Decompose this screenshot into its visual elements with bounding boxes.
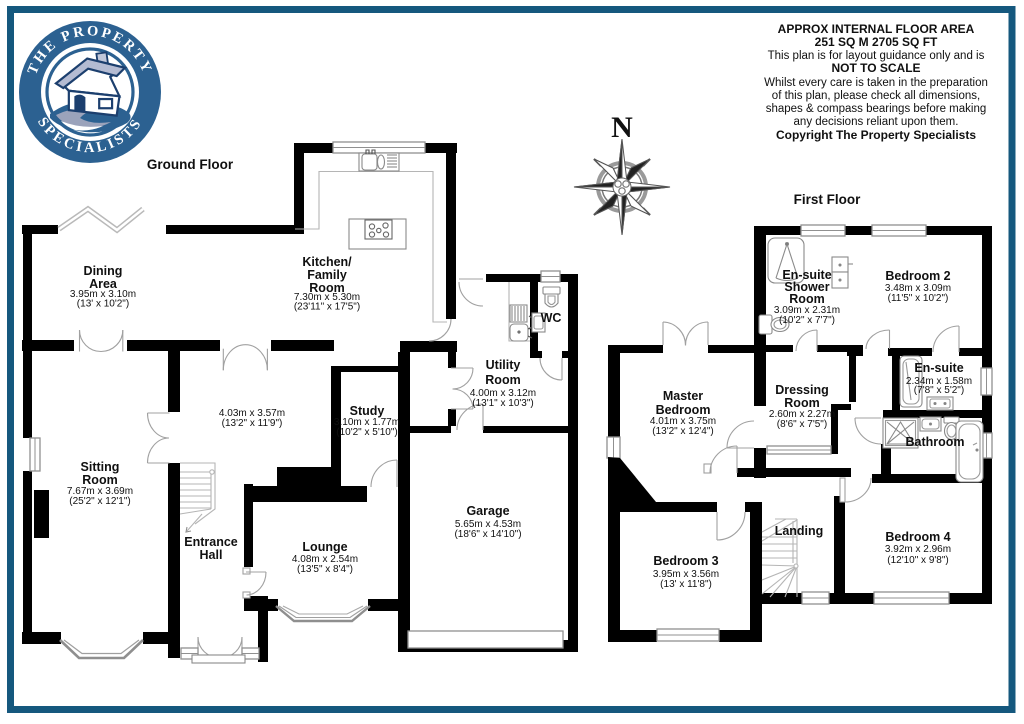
svg-text:Whilst every care is taken in: Whilst every care is taken in the prepar…	[764, 77, 988, 89]
svg-text:(10'2" x 5'10"): (10'2" x 5'10")	[336, 427, 398, 438]
svg-text:(7'8" x 5'2"): (7'8" x 5'2")	[914, 385, 964, 396]
svg-text:(25'2" x 12'1"): (25'2" x 12'1")	[69, 496, 131, 507]
svg-text:Room: Room	[789, 292, 824, 306]
svg-text:Master: Master	[663, 389, 703, 403]
svg-text:Dressing: Dressing	[775, 383, 829, 397]
svg-text:(18'6" x 14'10"): (18'6" x 14'10")	[454, 529, 521, 540]
svg-text:Room: Room	[784, 396, 819, 410]
svg-text:Sitting: Sitting	[81, 460, 120, 474]
svg-text:Bedroom 2: Bedroom 2	[885, 269, 950, 283]
svg-text:WC: WC	[541, 311, 562, 325]
svg-text:Room: Room	[485, 373, 520, 387]
svg-text:(13'5" x 8'4"): (13'5" x 8'4")	[297, 564, 353, 575]
svg-text:Hall: Hall	[200, 548, 223, 562]
svg-text:(8'6" x 7'5"): (8'6" x 7'5")	[777, 419, 827, 430]
svg-text:NOT TO SCALE: NOT TO SCALE	[831, 61, 920, 75]
svg-text:Bathroom: Bathroom	[905, 435, 964, 449]
svg-text:Utility: Utility	[486, 358, 521, 372]
svg-text:Kitchen/: Kitchen/	[302, 255, 352, 269]
svg-text:Room: Room	[82, 473, 117, 487]
svg-text:Bedroom 4: Bedroom 4	[885, 530, 950, 544]
svg-text:APPROX INTERNAL FLOOR AREA: APPROX INTERNAL FLOOR AREA	[778, 22, 975, 36]
svg-text:(13' x 10'2"): (13' x 10'2")	[77, 299, 129, 310]
svg-text:(12'10" x 9'8"): (12'10" x 9'8")	[887, 555, 949, 566]
svg-text:(10'2" x 7'7"): (10'2" x 7'7")	[779, 315, 835, 326]
svg-text:(13'2" x 11'9"): (13'2" x 11'9")	[222, 418, 283, 429]
svg-text:Copyright The Property Special: Copyright The Property Specialists	[776, 128, 976, 142]
svg-text:Garage: Garage	[466, 504, 509, 518]
svg-text:Bedroom 3: Bedroom 3	[653, 554, 718, 568]
svg-text:(13' x 11'8"): (13' x 11'8")	[660, 579, 712, 590]
svg-text:First Floor: First Floor	[794, 192, 861, 207]
svg-text:En-suite: En-suite	[914, 361, 963, 375]
svg-text:(11'5" x 10'2"): (11'5" x 10'2")	[888, 293, 949, 304]
svg-text:(13'1" x 10'3"): (13'1" x 10'3")	[472, 398, 534, 409]
svg-text:Bedroom: Bedroom	[656, 403, 711, 417]
svg-text:shapes & compass bearings befo: shapes & compass bearings before making	[766, 103, 987, 115]
svg-text:Landing: Landing	[775, 524, 824, 538]
svg-text:Study: Study	[350, 404, 385, 418]
svg-text:Ground Floor: Ground Floor	[147, 157, 234, 172]
svg-text:Dining: Dining	[84, 264, 123, 278]
svg-text:of this plan, please check all: of this plan, please check all dimension…	[772, 90, 980, 102]
svg-text:any decisions reliant upon the: any decisions reliant upon them.	[794, 116, 959, 128]
svg-text:251 SQ M 2705 SQ FT: 251 SQ M 2705 SQ FT	[815, 35, 938, 49]
svg-text:(23'11" x 17'5"): (23'11" x 17'5")	[294, 302, 360, 313]
svg-text:(13'2" x 12'4"): (13'2" x 12'4")	[652, 426, 714, 437]
svg-text:3.92m x 2.96m: 3.92m x 2.96m	[885, 544, 951, 555]
svg-text:Family: Family	[307, 268, 347, 282]
svg-text:Lounge: Lounge	[302, 540, 347, 554]
svg-text:Entrance: Entrance	[184, 535, 238, 549]
